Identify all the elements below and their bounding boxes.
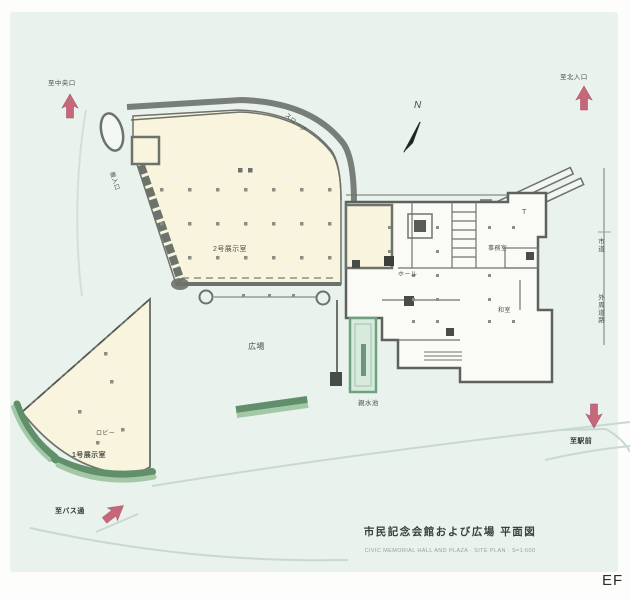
road-label-lower: 外周道路 [596, 294, 603, 324]
teardrop-planter [97, 111, 127, 153]
office-label: 事務室 [488, 246, 507, 253]
hall1-lobby-label: ロビー [96, 431, 115, 438]
approach-label-top-left: 至中央口 [48, 80, 76, 87]
column-core [414, 220, 426, 232]
north-arrow-needle [403, 121, 421, 153]
water-channel-core [361, 344, 366, 376]
page-corner-mark: EF [602, 572, 623, 589]
north-label: N [414, 100, 422, 112]
arrow-bottom-left [100, 499, 129, 526]
arrow-top-right [576, 86, 592, 110]
wall-junction-blob [171, 278, 189, 290]
main-hall-room-label: ホール [398, 272, 417, 279]
arrow-bottom-right [586, 404, 602, 428]
plaza-label: 広場 [248, 342, 265, 351]
t-room-mark: T [522, 209, 527, 217]
approach-label-top-right: 至北入口 [560, 74, 588, 81]
hall2-name-label: 2号展示室 [200, 246, 260, 254]
road-label-upper: 市道 [596, 238, 603, 253]
caption-title: 市民記念会館および広場 平面図 [330, 526, 570, 538]
scanned-site-plan-page: N 至中央口 至北入口 至駅前 至バス通 市道 外周道路 スロープ 搬入口 2号… [0, 0, 630, 600]
washitsu-label: 和室 [498, 308, 511, 315]
channel-end-block [330, 372, 342, 386]
approach-label-bottom-left: 至バス通 [55, 508, 85, 516]
plaza-hedge-strip [236, 396, 309, 418]
hall2-corner-room [132, 137, 159, 164]
exhibition-hall-2-footprint [133, 110, 341, 284]
caption-subtitle: CIVIC MEMORIAL HALL AND PLAZA · SITE PLA… [332, 548, 568, 554]
tree-circles [200, 291, 330, 305]
hall1-name-label: 1号展示室 [72, 452, 106, 460]
entry-door-block [384, 256, 394, 266]
pond-label: 親水池 [358, 400, 379, 407]
site-plan-drawing [0, 0, 630, 600]
approach-label-bottom-right: 至駅前 [570, 438, 592, 446]
arrow-top-left [62, 94, 78, 118]
